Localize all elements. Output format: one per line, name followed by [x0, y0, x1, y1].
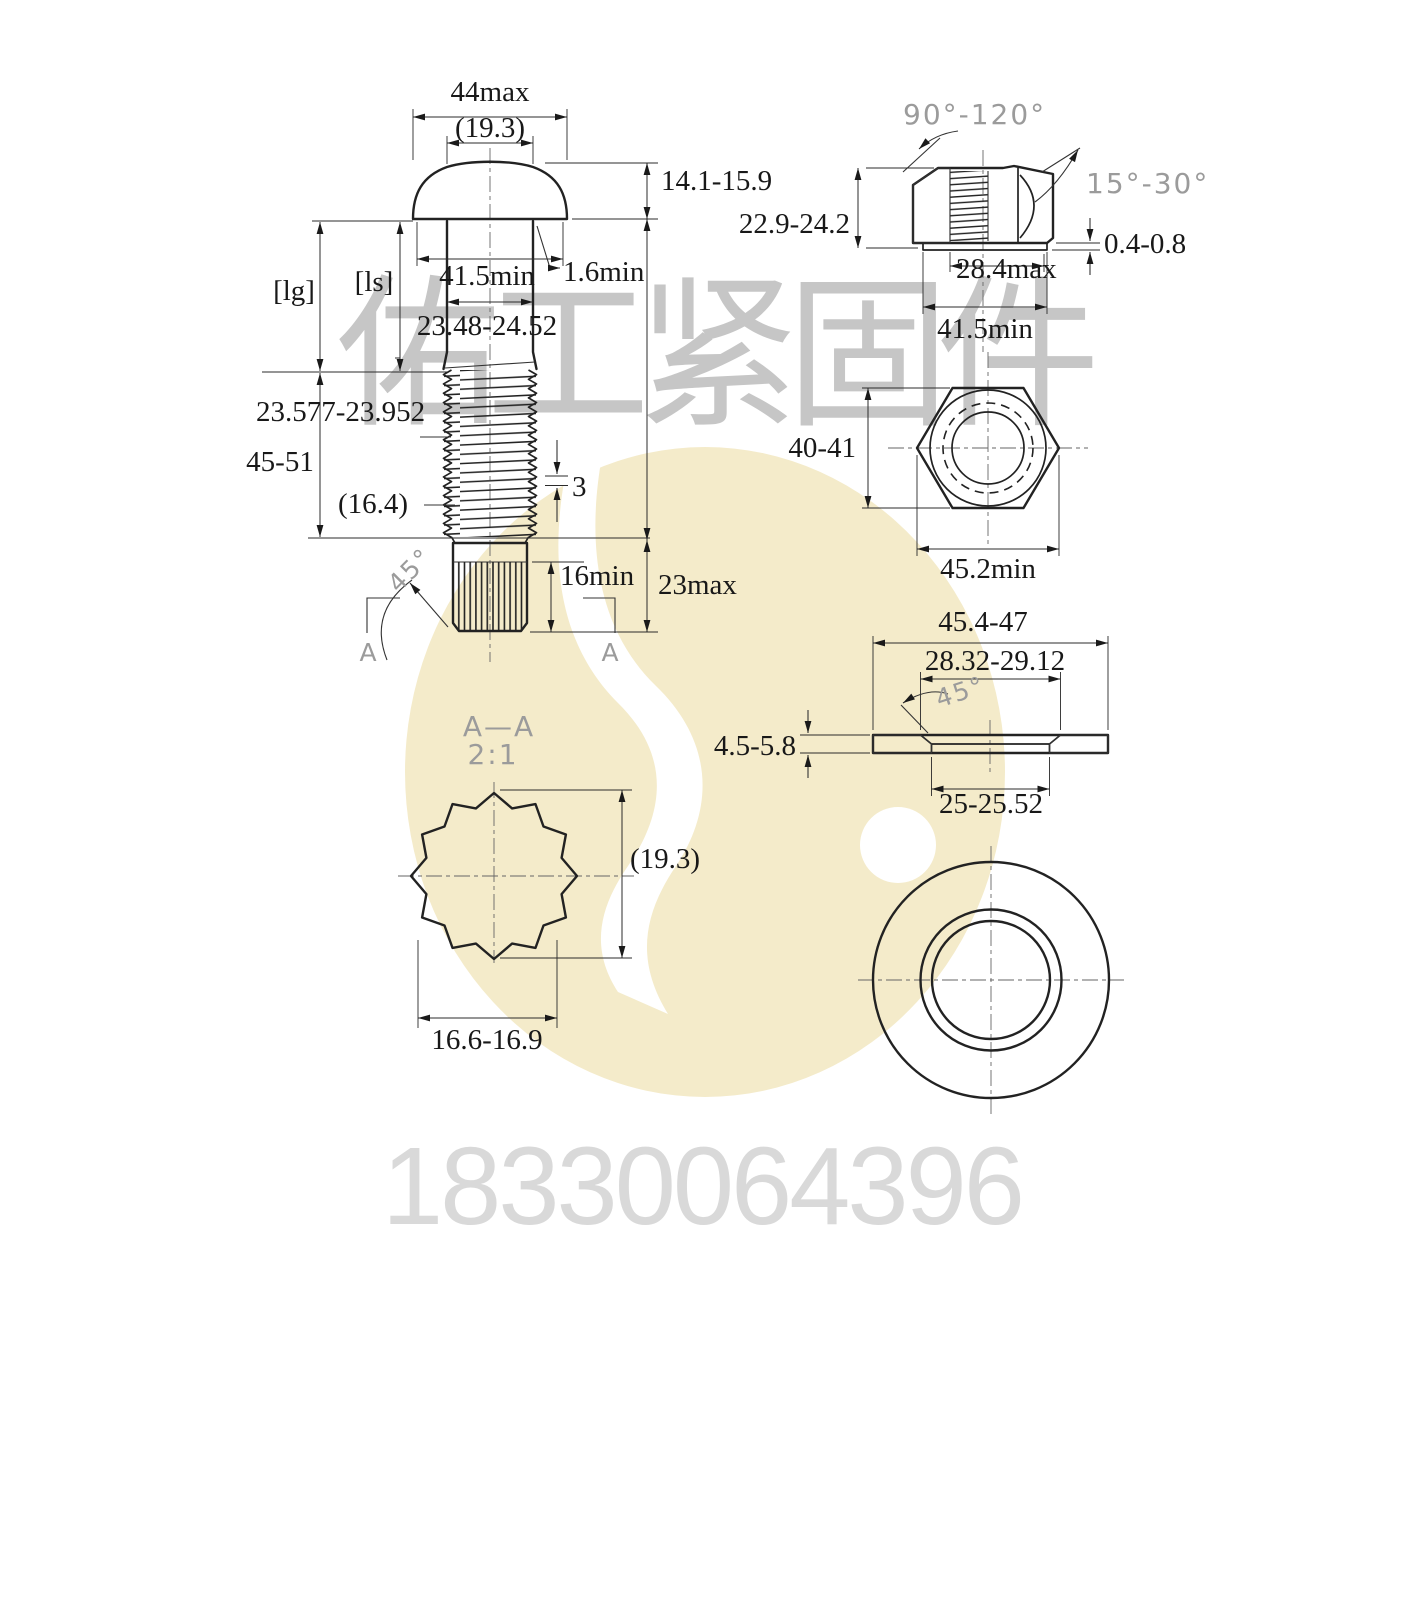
dim-head-ref-dia: (19.3)	[455, 112, 525, 144]
dim-nut-thread-dia: 28.4max	[956, 253, 1057, 285]
dim-nut-height: 22.9-24.2	[739, 208, 850, 240]
tip-chamfer-leader	[410, 583, 448, 627]
bolt-spline-texture	[456, 562, 524, 631]
bolt-thread-texture	[444, 370, 536, 537]
dim-thread-minor-ref: (16.4)	[338, 488, 408, 520]
dim-grip-label: [lg]	[273, 275, 315, 307]
dim-tip-length: 23max	[658, 569, 737, 601]
section-label-right: A	[601, 638, 620, 667]
nut-side-view: 90°-120° 15°-30° 22.9-24.2 0.4-0.8 28.4m…	[739, 98, 1210, 352]
dim-head-width: 44max	[451, 76, 530, 108]
bolt-side-view: 44max (19.3) 41.5min 1.6min 23.48-24.52 …	[246, 76, 772, 667]
dim-thread-major: 23.577-23.952	[256, 396, 425, 428]
dim-spline-ref-dia: (19.3)	[630, 843, 700, 875]
washer-chamfer-ext	[901, 705, 928, 733]
dim-bearing-dia: 41.5min	[439, 260, 535, 292]
dim-washer-thickness: 4.5-5.8	[714, 730, 796, 762]
dim-thread-length: 45-51	[246, 446, 314, 478]
washer-hole-edges	[921, 735, 1061, 753]
dim-shank-label: [ls]	[355, 266, 394, 298]
section-aa-view: A—A 2:1 (19.3) 16.6-16.9	[398, 710, 700, 1056]
drawing-svg: 44max (19.3) 41.5min 1.6min 23.48-24.52 …	[0, 0, 1416, 1600]
nut-section-hatch	[913, 168, 950, 243]
chamfer-leader-arc	[1035, 150, 1078, 202]
engineering-drawing-page: 佑工紧固件 18330064396	[0, 0, 1416, 1600]
section-label-left: A	[359, 638, 378, 667]
bolt-shank-right	[533, 221, 537, 369]
dim-washer-face-height: 0.4-0.8	[1104, 228, 1186, 260]
dim-shank-dia: 23.48-24.52	[417, 310, 557, 342]
fillet-leader	[537, 226, 560, 268]
dim-spline-width: 16.6-16.9	[431, 1024, 542, 1056]
dim-spline-length: 16min	[560, 560, 635, 592]
dim-countersink-angle: 90°-120°	[903, 98, 1046, 131]
section-mark-right	[583, 598, 615, 633]
dim-across-corners: 45.2min	[940, 553, 1036, 585]
dim-washer-od: 45.4-47	[938, 606, 1027, 638]
dim-pitch: 3	[572, 471, 587, 503]
section-scale: 2:1	[467, 738, 518, 771]
chamfer-ext-line	[1042, 148, 1080, 172]
dim-fillet: 1.6min	[563, 256, 645, 288]
nut-thread-texture	[950, 171, 988, 241]
dim-washer-chamfer-dia: 28.32-29.12	[925, 645, 1065, 677]
dim-nut-wface-dia: 41.5min	[937, 313, 1033, 345]
dim-tip-chamfer-angle: 45°	[382, 542, 438, 598]
dim-across-flats: 40-41	[788, 432, 856, 464]
washer-top-view	[858, 846, 1124, 1114]
nut-top-view: 40-41 45.2min	[788, 352, 1088, 585]
countersink-ext-line	[903, 138, 940, 172]
dim-head-height: 14.1-15.9	[661, 165, 772, 197]
bolt-shank-left	[444, 221, 448, 369]
nut-corner-arc	[1020, 175, 1034, 238]
washer-side-view: 45.4-47 28.32-29.12 45° 4.5-5.8 25-25.52	[714, 606, 1108, 820]
dim-nut-chamfer-angle: 15°-30°	[1086, 167, 1209, 200]
dim-washer-id: 25-25.52	[939, 788, 1043, 820]
